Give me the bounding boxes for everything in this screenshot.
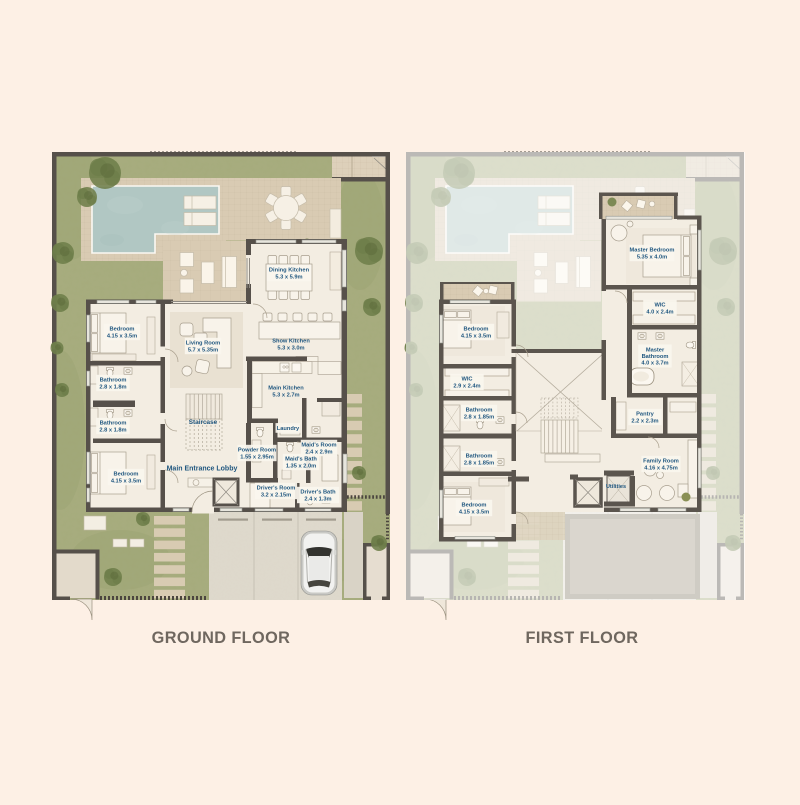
svg-text:Main Entrance Lobby: Main Entrance Lobby (167, 465, 238, 472)
svg-text:Laundry: Laundry (277, 426, 300, 432)
svg-text:Driver's Room3.2 x 2.15m: Driver's Room3.2 x 2.15m (257, 486, 296, 499)
svg-text:Bedroom4.15 x 3.5m: Bedroom4.15 x 3.5m (107, 327, 137, 340)
svg-text:Maid's Bath1.35 x 2.0m: Maid's Bath1.35 x 2.0m (285, 457, 317, 470)
svg-text:Bathroom2.8 x 1.85m: Bathroom2.8 x 1.85m (464, 408, 494, 421)
svg-text:Bathroom2.8 x 1.85m: Bathroom2.8 x 1.85m (464, 454, 494, 467)
svg-text:Main Kitchen5.3 x 2.7m: Main Kitchen5.3 x 2.7m (268, 386, 304, 399)
svg-text:Powder Room1.55 x 2.95m: Powder Room1.55 x 2.95m (238, 448, 276, 461)
svg-text:FIRST FLOOR: FIRST FLOOR (526, 629, 639, 647)
svg-text:Show Kitchen5.3 x 3.0m: Show Kitchen5.3 x 3.0m (272, 339, 310, 352)
svg-text:GROUND FLOOR: GROUND FLOOR (152, 629, 291, 647)
svg-text:Living Room5.7 x 5.35m: Living Room5.7 x 5.35m (186, 341, 220, 354)
svg-text:Bathroom2.8 x 1.8m: Bathroom2.8 x 1.8m (99, 421, 126, 434)
svg-text:Maid's Room2.4 x 2.9m: Maid's Room2.4 x 2.9m (301, 443, 336, 456)
svg-text:Bathroom2.8 x 1.8m: Bathroom2.8 x 1.8m (99, 378, 126, 391)
svg-text:Bedroom4.15 x 3.5m: Bedroom4.15 x 3.5m (111, 472, 141, 485)
svg-text:Utilities: Utilities (606, 484, 626, 490)
svg-text:Bedroom4.15 x 3.5m: Bedroom4.15 x 3.5m (461, 327, 491, 340)
svg-text:Family Room4.16 x 4.75m: Family Room4.16 x 4.75m (643, 459, 679, 472)
svg-text:Driver's Bath2.4 x 1.3m: Driver's Bath2.4 x 1.3m (300, 490, 336, 503)
svg-text:Bedroom4.15 x 3.5m: Bedroom4.15 x 3.5m (459, 503, 489, 516)
svg-text:Staircase: Staircase (189, 419, 218, 426)
